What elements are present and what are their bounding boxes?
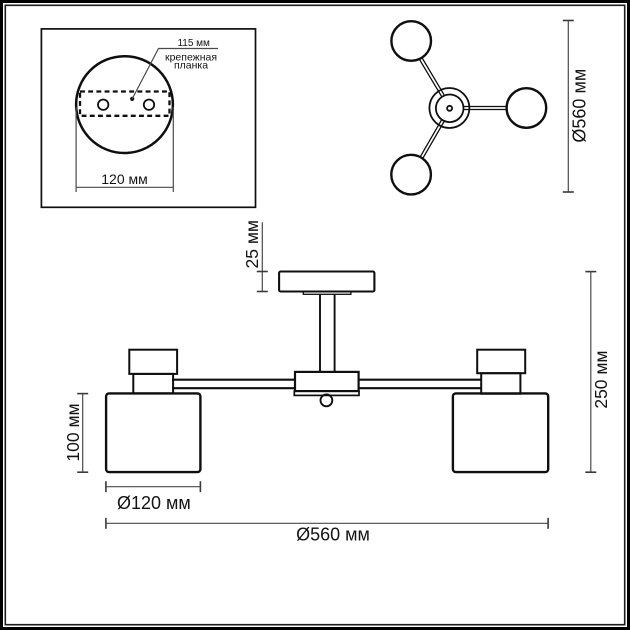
svg-text:25 мм: 25 мм: [242, 220, 262, 268]
svg-text:120 мм: 120 мм: [101, 171, 148, 187]
svg-text:Ø560 мм: Ø560 мм: [570, 69, 590, 143]
svg-text:250 мм: 250 мм: [591, 351, 611, 409]
svg-text:115 мм: 115 мм: [177, 38, 210, 49]
svg-text:Ø120 мм: Ø120 мм: [117, 493, 191, 513]
svg-text:Ø560 мм: Ø560 мм: [296, 525, 370, 545]
svg-text:планка: планка: [174, 60, 208, 72]
svg-text:100 мм: 100 мм: [63, 403, 83, 461]
